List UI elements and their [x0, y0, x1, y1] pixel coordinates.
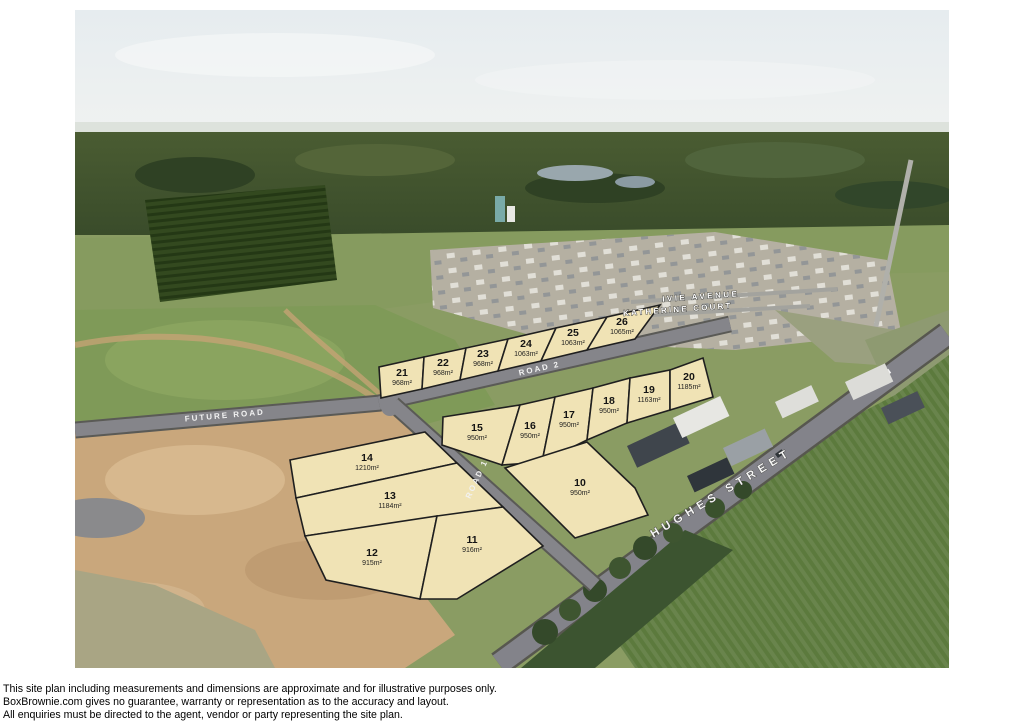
disclaimer-line-2: BoxBrownie.com gives no guarantee, warra…	[3, 696, 497, 709]
disclaimer-line-1: This site plan including measurements an…	[3, 683, 497, 696]
lot-number: 13	[384, 490, 396, 502]
lot-number: 21	[396, 367, 408, 379]
lot-number: 23	[477, 348, 489, 360]
lot-number: 24	[520, 338, 532, 350]
lot-number: 26	[616, 316, 628, 328]
lot-number: 11	[466, 534, 477, 546]
lot-area: 1184m²	[378, 503, 402, 510]
lot-number: 20	[683, 371, 695, 383]
lot-number: 14	[361, 452, 373, 464]
lot-area: 1063m²	[514, 351, 538, 358]
river	[537, 165, 613, 181]
lot-area: 950m²	[599, 408, 620, 415]
lot-area: 1065m²	[610, 329, 634, 336]
agency-logo: ANDREW JENKINS REAL ESTATE	[785, 606, 949, 668]
lot-number: 16	[524, 420, 536, 432]
aerial-photo: 21 968m² 22 968m² 23 968m² 24 1063m²	[75, 10, 949, 668]
lot-area: 1185m²	[677, 384, 701, 391]
house-icon	[785, 606, 949, 668]
lot-area: 915m²	[362, 560, 383, 567]
lot-area: 968m²	[433, 370, 454, 377]
lot-area: 950m²	[467, 435, 488, 442]
lot-area: 916m²	[462, 547, 483, 554]
lot-area: 1063m²	[561, 340, 585, 347]
disclaimer: This site plan including measurements an…	[3, 683, 497, 722]
lot-number: 10	[574, 477, 586, 489]
lot-number: 15	[471, 422, 483, 434]
lot-number: 22	[437, 357, 449, 369]
lot-number: 17	[563, 409, 575, 421]
disclaimer-line-3: All enquiries must be directed to the ag…	[3, 709, 497, 722]
lot-area: 968m²	[392, 380, 413, 387]
lot-area: 950m²	[520, 433, 541, 440]
lot-area: 950m²	[570, 490, 591, 497]
lot-number: 19	[643, 384, 655, 396]
lot-number: 25	[567, 327, 579, 339]
lot-area: 1163m²	[637, 397, 661, 404]
site-plan-page: 21 968m² 22 968m² 23 968m² 24 1063m²	[0, 0, 1024, 724]
silo	[495, 196, 505, 222]
lot-number: 12	[366, 547, 378, 559]
lot-area: 968m²	[473, 361, 494, 368]
lot-area: 950m²	[559, 422, 580, 429]
site-plan-drawing: 21 968m² 22 968m² 23 968m² 24 1063m²	[75, 10, 949, 668]
lot-number: 18	[603, 395, 615, 407]
lot-area: 1210m²	[355, 465, 379, 472]
